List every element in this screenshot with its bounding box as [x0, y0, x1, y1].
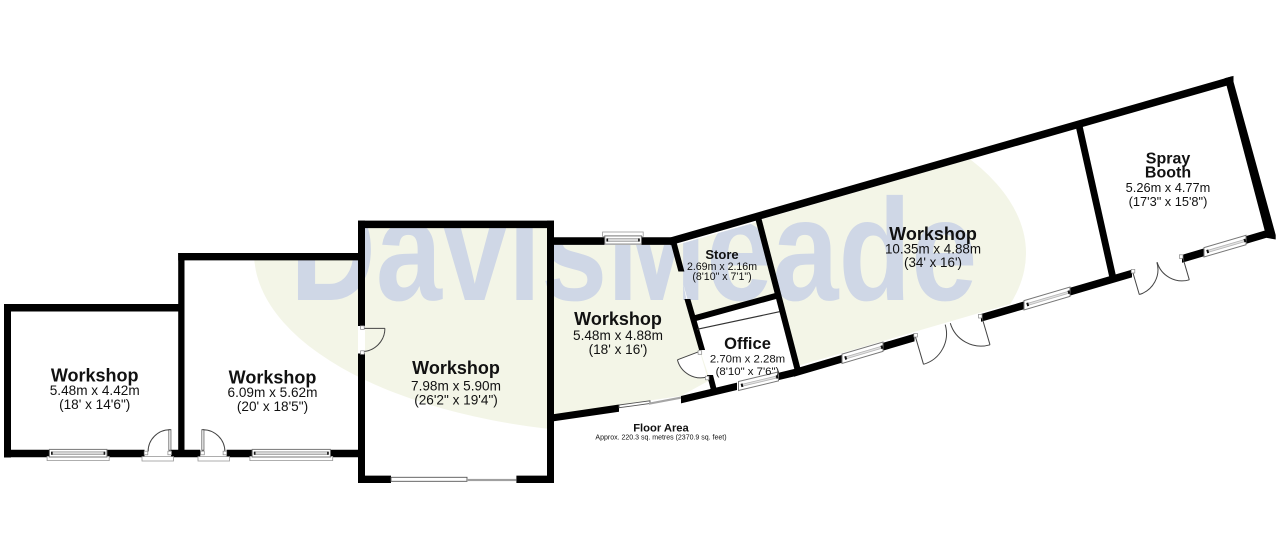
svg-text:(8'10" x 7'6"): (8'10" x 7'6") — [716, 366, 780, 378]
svg-text:Floor Area: Floor Area — [633, 423, 689, 435]
svg-text:5.48m x 4.42m: 5.48m x 4.42m — [50, 383, 140, 398]
svg-text:5.26m x 4.77m: 5.26m x 4.77m — [1126, 180, 1211, 195]
svg-text:(8'10" x 7'1"): (8'10" x 7'1") — [692, 271, 751, 283]
svg-text:Office: Office — [724, 335, 771, 353]
svg-text:7.98m x 5.90m: 7.98m x 5.90m — [411, 378, 501, 393]
svg-text:(26'2" x 19'4"): (26'2" x 19'4") — [414, 392, 498, 407]
svg-text:6.09m x 5.62m: 6.09m x 5.62m — [228, 385, 318, 400]
svg-text:5.48m x 4.88m: 5.48m x 4.88m — [573, 328, 663, 343]
svg-text:Approx. 220.3 sq. metres (2370: Approx. 220.3 sq. metres (2370.9 sq. fee… — [595, 435, 726, 442]
svg-text:(18' x 14'6"): (18' x 14'6") — [59, 397, 130, 412]
svg-text:(20' x 18'5"): (20' x 18'5") — [237, 399, 308, 414]
svg-text:Workshop: Workshop — [574, 309, 662, 329]
svg-text:(34' x 16'): (34' x 16') — [904, 255, 962, 270]
svg-text:(18' x 16'): (18' x 16') — [589, 342, 648, 357]
svg-text:Workshop: Workshop — [412, 358, 500, 378]
svg-text:2.70m x 2.28m: 2.70m x 2.28m — [710, 353, 785, 365]
svg-text:Store: Store — [705, 247, 738, 262]
svg-text:(17'3" x 15'8"): (17'3" x 15'8") — [1129, 194, 1208, 209]
